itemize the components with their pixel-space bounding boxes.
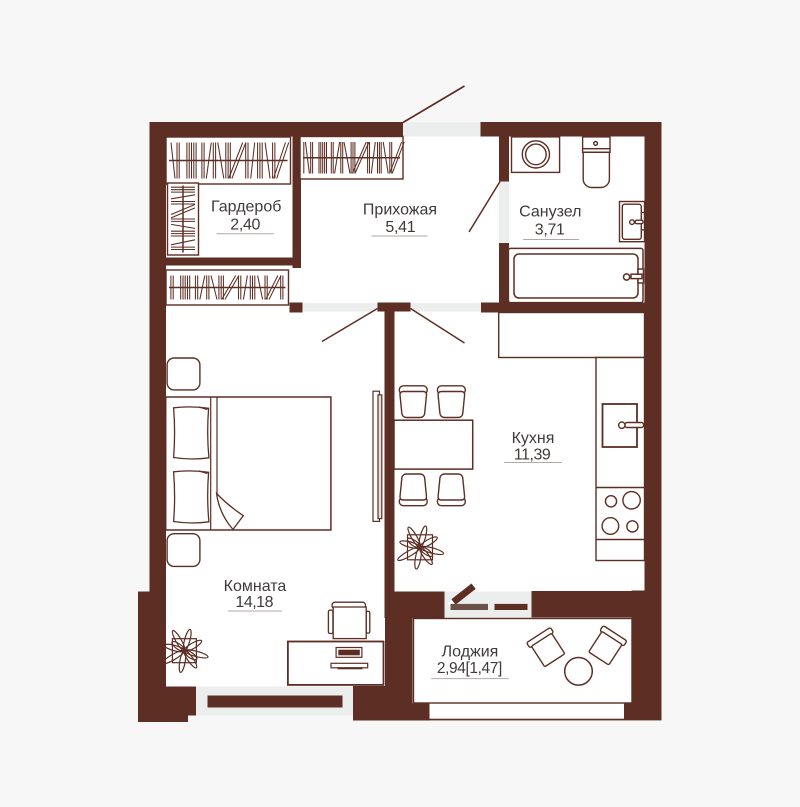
svg-text:Прихожая: Прихожая bbox=[363, 202, 437, 219]
svg-text:5,41: 5,41 bbox=[385, 219, 415, 236]
svg-text:Комната: Комната bbox=[224, 578, 287, 595]
svg-text:Кухня: Кухня bbox=[512, 430, 555, 447]
svg-text:2,94[1,47]: 2,94[1,47] bbox=[437, 660, 502, 677]
svg-text:Санузел: Санузел bbox=[519, 204, 581, 221]
svg-text:11,39: 11,39 bbox=[514, 446, 551, 463]
svg-text:2,40: 2,40 bbox=[230, 217, 260, 234]
svg-text:3,71: 3,71 bbox=[535, 221, 565, 238]
svg-text:14,18: 14,18 bbox=[235, 594, 273, 611]
svg-text:Лоджия: Лоджия bbox=[442, 643, 499, 660]
svg-text:Гардероб: Гардероб bbox=[211, 199, 281, 216]
